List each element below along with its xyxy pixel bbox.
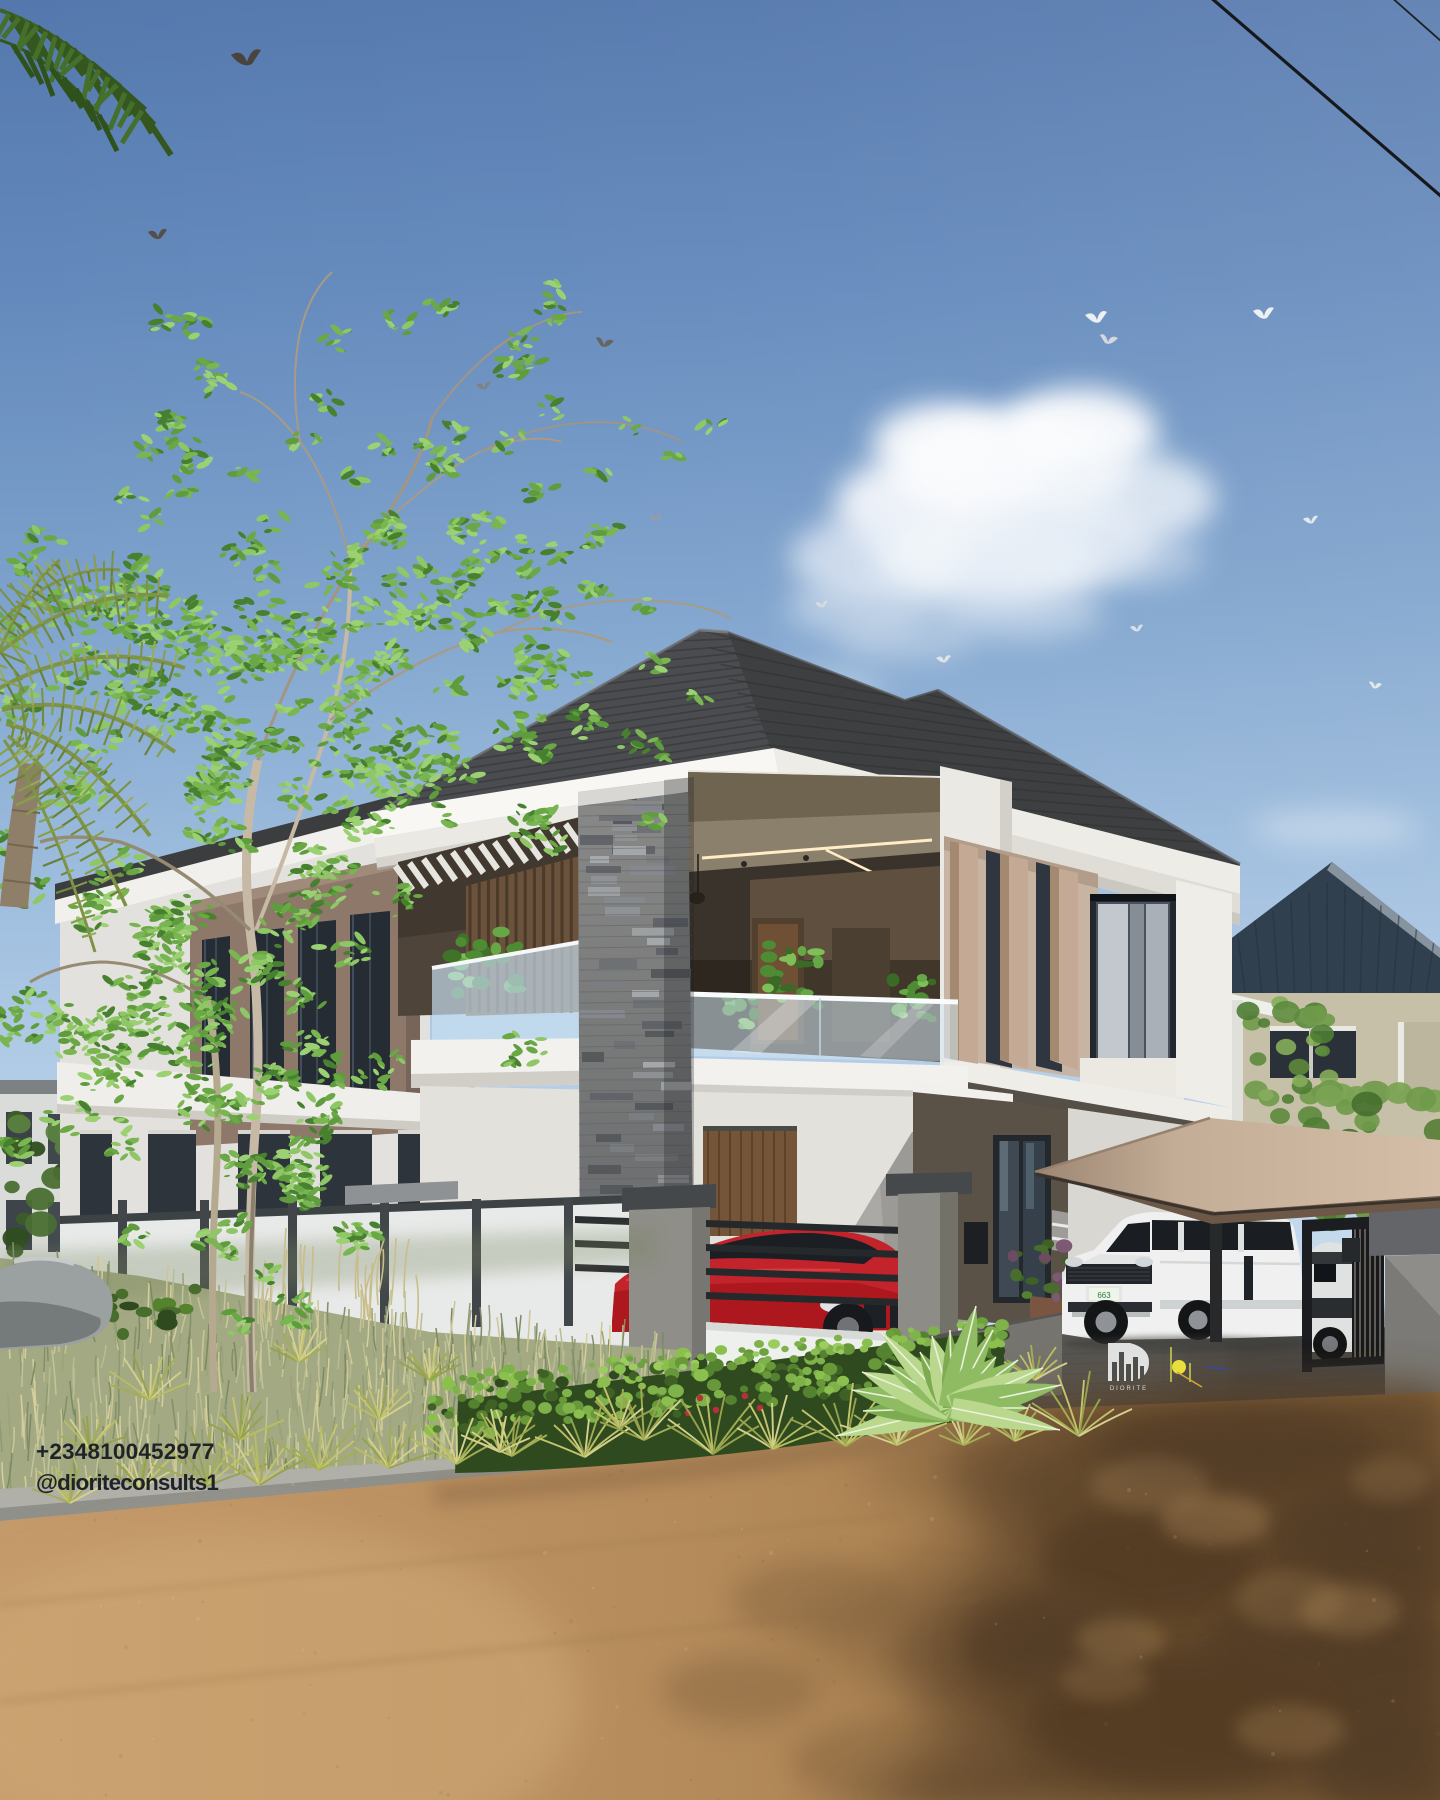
svg-text:663: 663 bbox=[1097, 1291, 1111, 1300]
svg-text:DIORITE: DIORITE bbox=[1110, 1386, 1148, 1392]
svg-text:+2348100452977: +2348100452977 bbox=[36, 1439, 215, 1464]
svg-text:@dioriteconsults1: @dioriteconsults1 bbox=[36, 1470, 218, 1495]
